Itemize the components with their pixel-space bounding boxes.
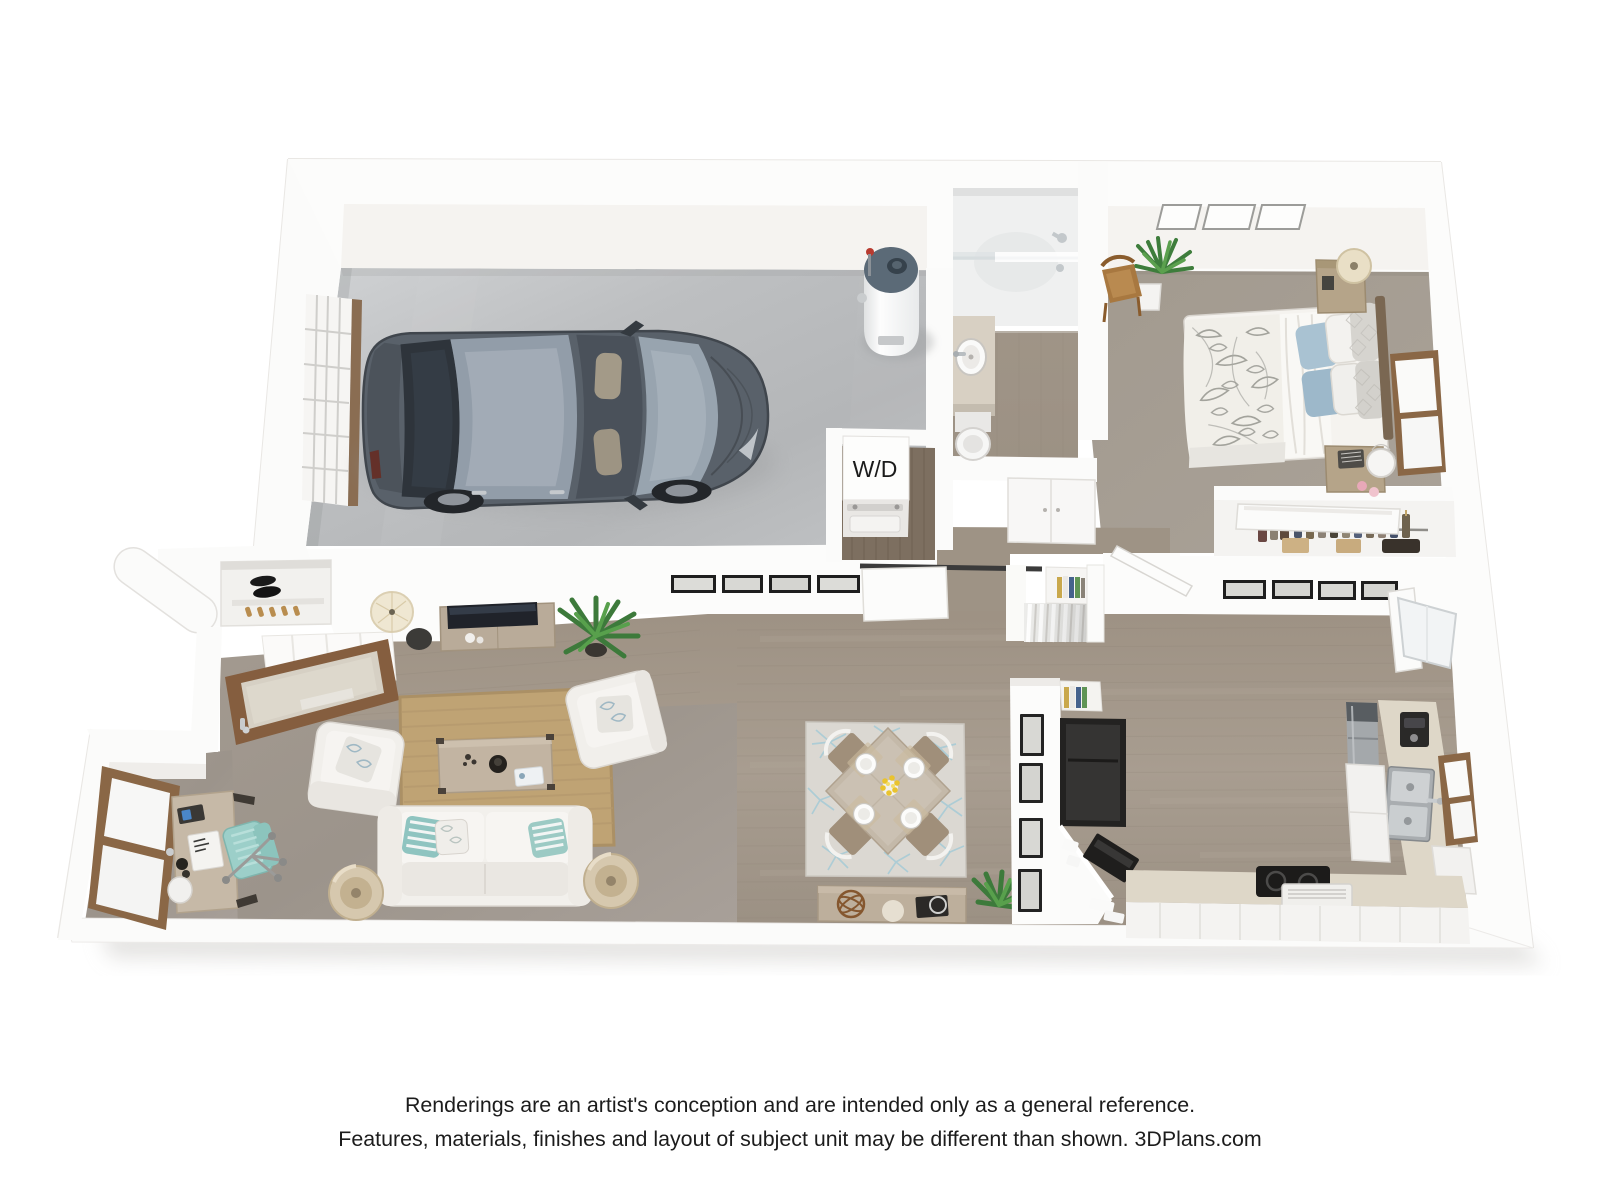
svg-text:W/D: W/D <box>853 456 898 482</box>
svg-text:Features, materials, finishes: Features, materials, finishes and layout… <box>338 1127 1261 1151</box>
svg-text:Renderings are an artist's con: Renderings are an artist's conception an… <box>405 1093 1195 1117</box>
